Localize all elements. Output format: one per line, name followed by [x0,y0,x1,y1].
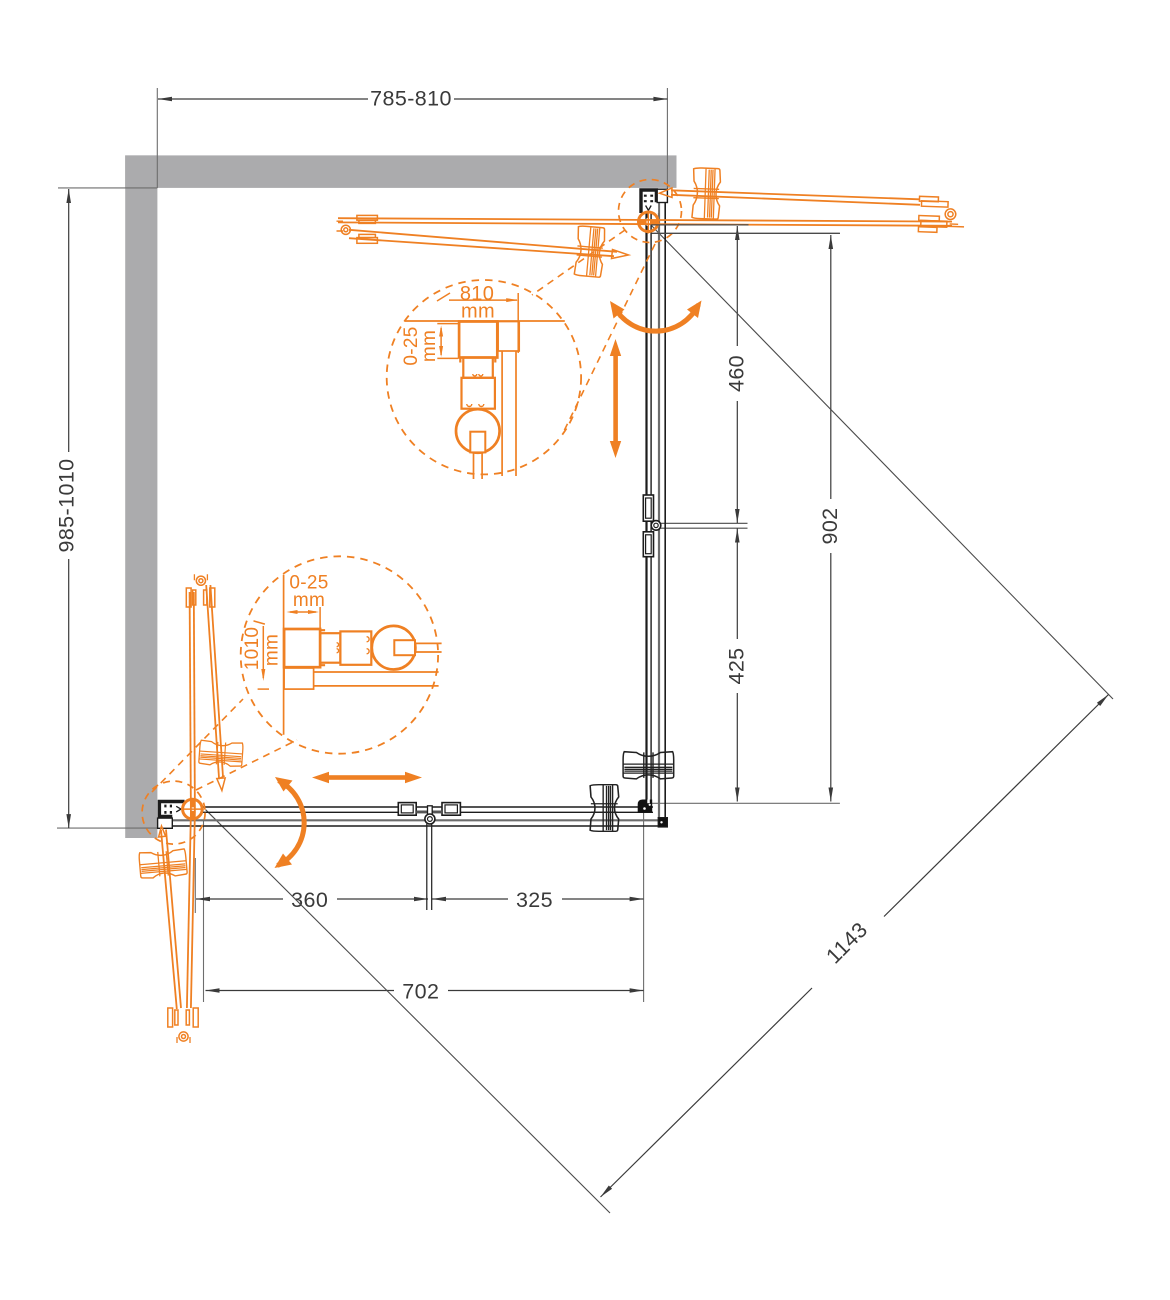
svg-text:mm: mm [461,301,495,323]
svg-text:1143: 1143 [822,918,873,969]
svg-text:1010: 1010 [242,627,263,670]
svg-text:460: 460 [725,355,749,392]
svg-text:425: 425 [725,647,749,684]
svg-text:mm: mm [293,590,325,611]
svg-text:985-1010: 985-1010 [54,458,78,552]
svg-text:785-810: 785-810 [370,87,452,111]
svg-text:mm: mm [419,330,440,362]
svg-text:325: 325 [516,888,553,912]
svg-text:902: 902 [818,507,842,544]
svg-text:mm: mm [261,634,282,666]
svg-text:702: 702 [402,980,439,1004]
